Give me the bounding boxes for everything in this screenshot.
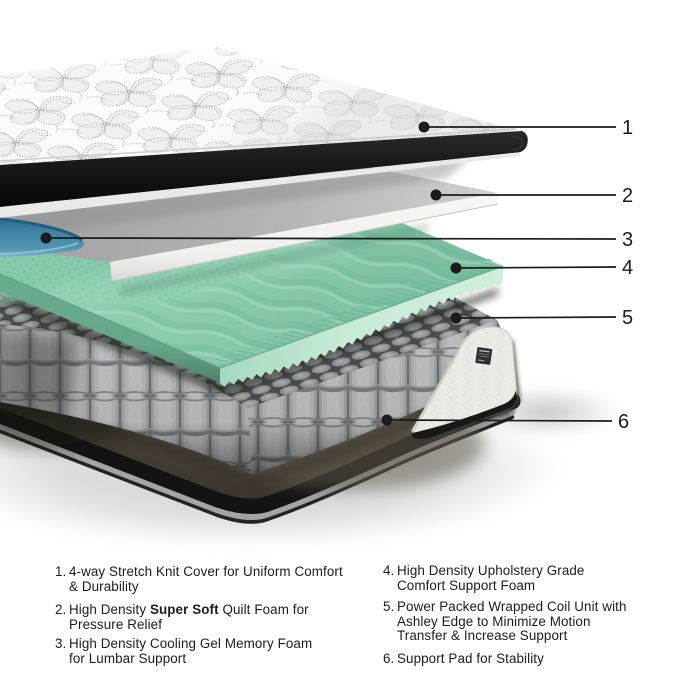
svg-text:4: 4	[622, 257, 633, 279]
svg-text:1: 1	[622, 117, 633, 139]
svg-text:3: 3	[622, 229, 633, 251]
svg-text:2: 2	[622, 185, 633, 207]
svg-text:6: 6	[618, 411, 629, 433]
svg-text:5: 5	[622, 307, 633, 329]
